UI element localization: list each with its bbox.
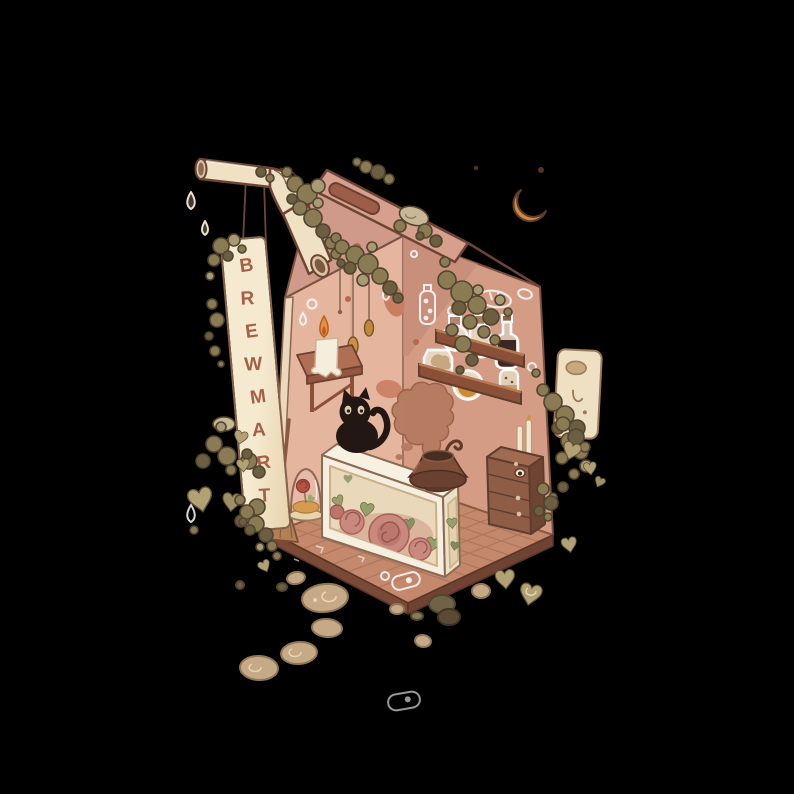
sign-letter: W	[243, 348, 263, 382]
sign-letter: R	[254, 446, 272, 481]
eye-knob-icon	[515, 469, 525, 477]
water-droplets	[187, 192, 208, 235]
sign-letter: E	[243, 314, 260, 348]
sign-letter: T	[258, 479, 271, 513]
sign-letter: R	[239, 282, 254, 316]
sign-letter: A	[251, 414, 266, 448]
chest-of-drawers	[487, 447, 545, 534]
sign-letter: M	[248, 380, 268, 415]
exterior-dispenser-box	[554, 349, 603, 439]
amber-bead	[365, 320, 374, 336]
crescent-moon-icon	[474, 166, 546, 221]
scene-svg	[0, 0, 794, 794]
sign-letter: B	[237, 249, 255, 284]
illustration-stage: B R E W M A R T	[0, 0, 794, 794]
